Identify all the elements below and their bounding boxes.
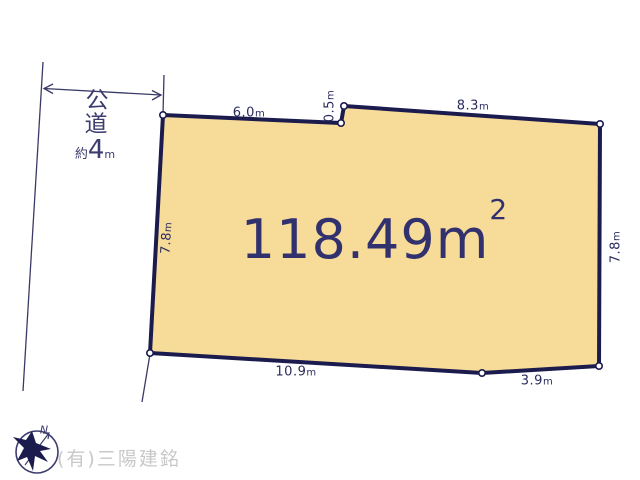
road-width-prefix: 約 bbox=[75, 148, 88, 161]
company-watermark: (有)三陽建銘 bbox=[57, 448, 181, 471]
dim-unit: m bbox=[543, 377, 553, 388]
dim-right-side: 7.8m bbox=[610, 231, 623, 263]
road-width-label: 約 4 m bbox=[75, 137, 115, 163]
dim-unit: m bbox=[326, 90, 337, 100]
road-name-char-1: 公 bbox=[86, 90, 109, 113]
dim-value: 6.0 bbox=[233, 106, 255, 121]
area-unit: m bbox=[436, 208, 490, 271]
dim-value: 0.5 bbox=[323, 100, 338, 122]
road-name-char-2: 道 bbox=[85, 114, 108, 137]
dim-top-left: 6.0m bbox=[233, 107, 265, 120]
road-edge-line-left bbox=[23, 62, 43, 391]
area-superscript: 2 bbox=[489, 193, 507, 226]
dim-unit: m bbox=[306, 368, 316, 379]
dim-bottom-right: 3.9m bbox=[521, 375, 553, 388]
dim-unit: m bbox=[479, 102, 489, 113]
vertex-dot bbox=[596, 363, 602, 369]
vertex-dot bbox=[160, 112, 166, 118]
parcel-area-label: 118.49m2 bbox=[241, 213, 507, 267]
road-edge-line-lower bbox=[142, 354, 150, 402]
road-edge-line-upper bbox=[163, 75, 164, 114]
dim-notch: 0.5m bbox=[324, 90, 337, 122]
dim-unit: m bbox=[163, 222, 175, 233]
road-width-value: 4 bbox=[88, 137, 105, 163]
compass bbox=[13, 431, 58, 473]
land-plot-diagram: 公 道 約 4 m 6.0m 0.5m 8.3m 7.8m 7.8m 10.9m… bbox=[0, 0, 640, 480]
dim-value: 7.8 bbox=[609, 241, 624, 263]
dim-unit: m bbox=[255, 109, 265, 120]
dim-top-right: 8.3m bbox=[457, 100, 489, 113]
dim-bottom-left: 10.9m bbox=[275, 366, 316, 379]
dim-value: 10.9 bbox=[275, 365, 306, 380]
dim-left-side: 7.8m bbox=[159, 221, 174, 254]
vertex-dot bbox=[479, 370, 485, 376]
vertex-dot bbox=[338, 120, 344, 126]
area-value: 118.49 bbox=[241, 208, 436, 271]
vertex-dot bbox=[341, 103, 347, 109]
road-width-unit: m bbox=[104, 149, 115, 160]
vertex-dot bbox=[147, 350, 153, 356]
dim-unit: m bbox=[612, 231, 623, 241]
vertex-dot bbox=[597, 121, 603, 127]
dim-value: 8.3 bbox=[457, 99, 479, 114]
dim-value: 3.9 bbox=[521, 374, 543, 389]
compass-north-label: N bbox=[40, 425, 48, 436]
dim-value: 7.8 bbox=[158, 232, 175, 255]
